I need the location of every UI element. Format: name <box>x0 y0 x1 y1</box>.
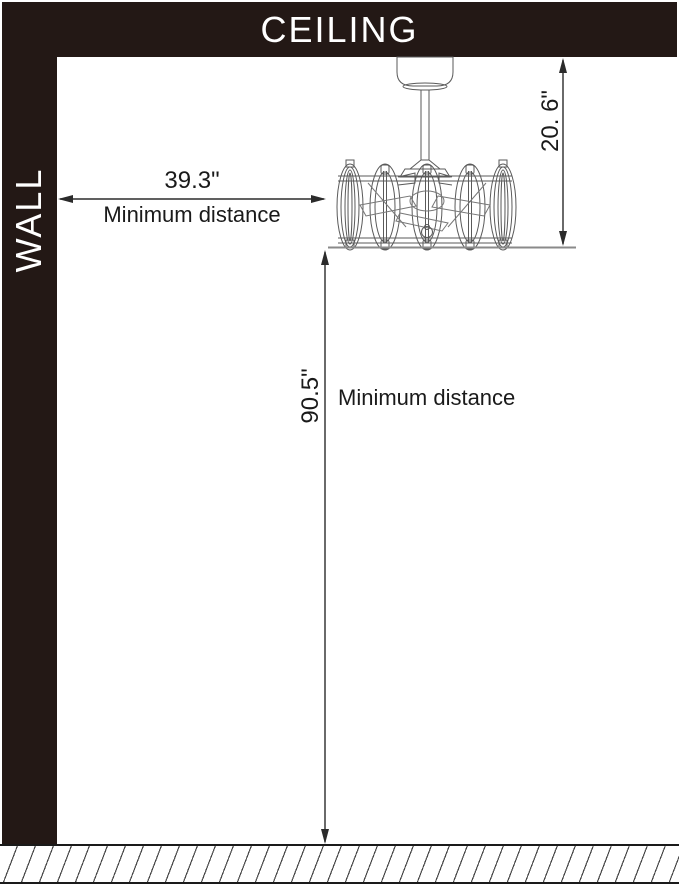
wall-bar <box>2 2 57 844</box>
dimension-value-wall-to-fixture: 39.3" <box>58 168 326 194</box>
ceiling-label: CEILING <box>0 8 679 52</box>
dimension-label-fixture-to-floor: Minimum distance <box>338 386 558 410</box>
installation-clearance-diagram: CEILING WALL <box>0 0 679 884</box>
dimension-label-wall-to-fixture: Minimum distance <box>58 203 326 227</box>
wall-label: WALL <box>9 140 49 300</box>
floor-hatch <box>0 844 679 884</box>
dimension-value-ceiling-to-fixture: 20. 6" <box>537 51 565 191</box>
canopy-icon <box>397 57 453 90</box>
dimension-value-fixture-to-floor: 90.5" <box>297 326 325 466</box>
